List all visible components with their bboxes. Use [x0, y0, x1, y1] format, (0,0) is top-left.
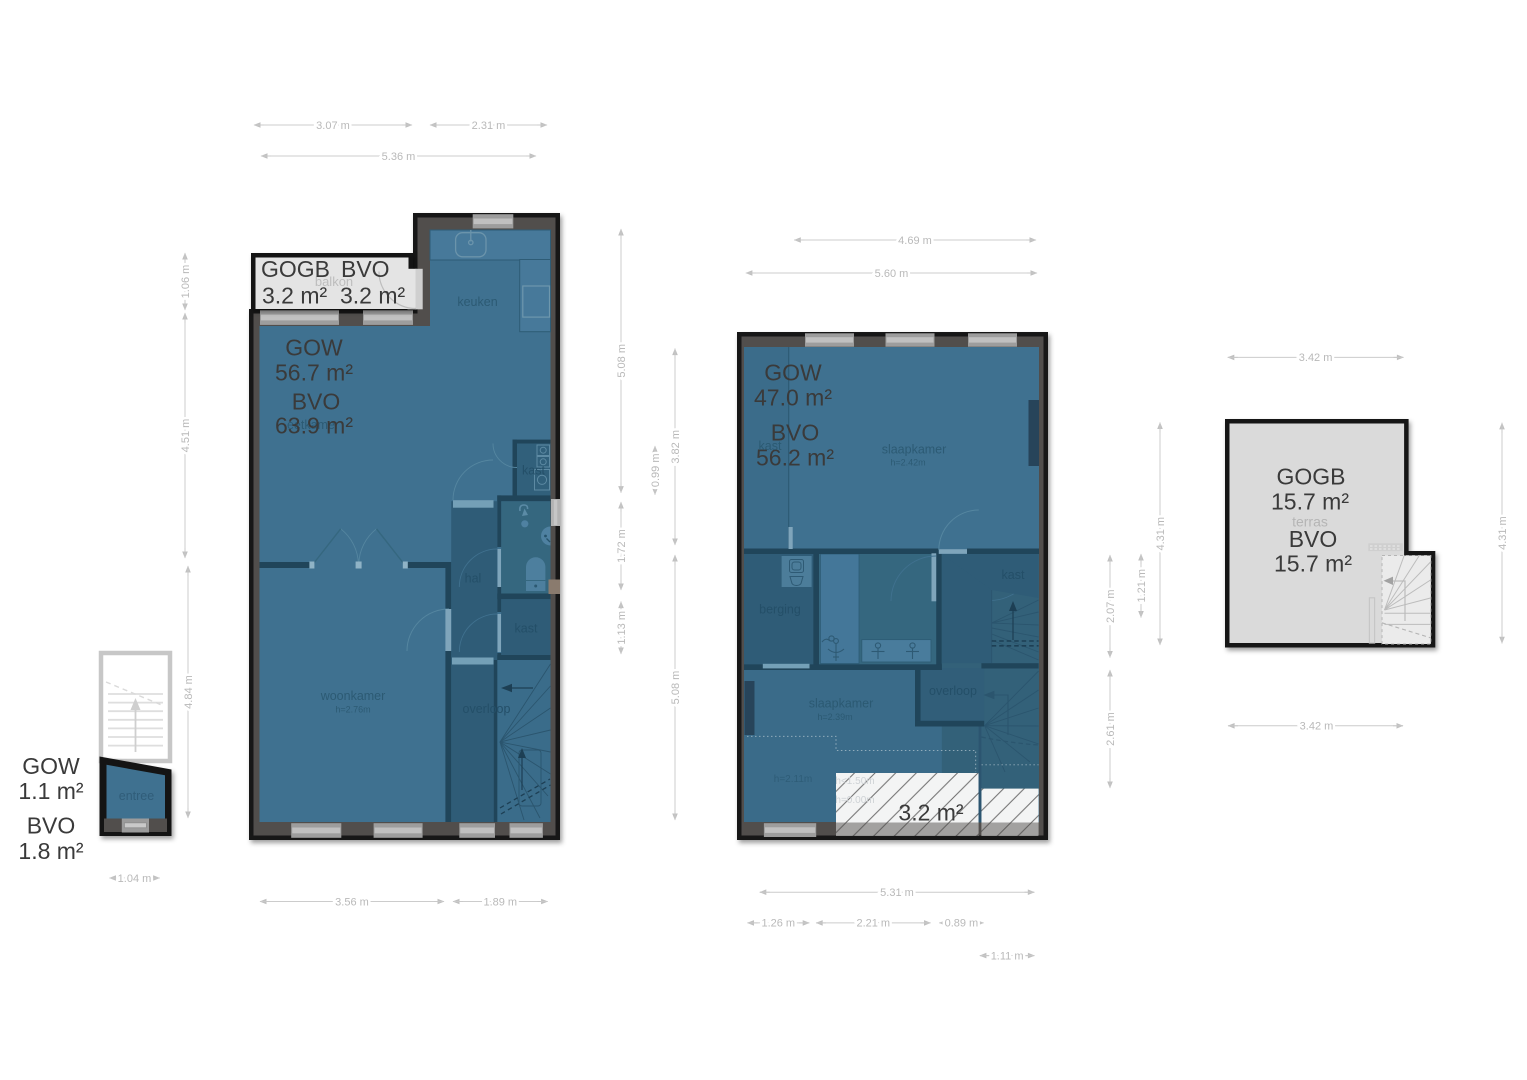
svg-text:BVO: BVO [341, 256, 390, 282]
svg-text:4.84 m: 4.84 m [183, 675, 195, 709]
svg-text:2.07 m: 2.07 m [1105, 589, 1117, 623]
svg-text:1.11 m: 1.11 m [991, 950, 1024, 962]
svg-text:slaapkamer: slaapkamer [809, 697, 874, 711]
svg-text:h=2.39m: h=2.39m [817, 712, 852, 722]
svg-text:GOGB: GOGB [261, 256, 330, 282]
svg-text:entree: entree [119, 789, 154, 803]
svg-text:woonkamer: woonkamer [320, 689, 386, 703]
svg-text:5.60 m: 5.60 m [875, 268, 909, 280]
svg-text:2.61 m: 2.61 m [1105, 712, 1117, 746]
svg-text:overloop: overloop [463, 702, 511, 716]
svg-text:GOW: GOW [285, 335, 343, 361]
svg-text:kast: kast [759, 439, 782, 453]
svg-text:3.56 m: 3.56 m [335, 896, 369, 908]
svg-text:3.2 m²: 3.2 m² [898, 800, 964, 826]
svg-text:1.04 m: 1.04 m [118, 873, 152, 885]
svg-text:4.31 m: 4.31 m [1497, 516, 1509, 550]
svg-text:5.08 m: 5.08 m [616, 344, 628, 378]
svg-text:h=2.76m: h=2.76m [335, 705, 370, 715]
svg-text:2.21 m: 2.21 m [856, 918, 890, 930]
svg-text:3.07 m: 3.07 m [316, 120, 350, 132]
svg-text:BVO: BVO [292, 389, 341, 415]
svg-text:3.2 m²: 3.2 m² [262, 283, 328, 309]
svg-text:h=2.42m: h=2.42m [890, 458, 925, 468]
svg-text:BVO: BVO [1289, 526, 1338, 552]
svg-text:0.99 m: 0.99 m [650, 453, 662, 487]
svg-text:BVO: BVO [27, 813, 76, 839]
svg-text:1.72 m: 1.72 m [616, 529, 628, 563]
svg-text:0.89 m: 0.89 m [945, 918, 979, 930]
svg-text:h=2.11m: h=2.11m [774, 774, 812, 785]
svg-text:keuken: keuken [457, 295, 497, 309]
svg-text:GOW: GOW [764, 360, 822, 386]
svg-text:kast: kast [1002, 568, 1025, 582]
svg-text:slaapkamer: slaapkamer [882, 443, 947, 457]
svg-text:1.8 m²: 1.8 m² [18, 838, 84, 864]
svg-text:1.13 m: 1.13 m [616, 611, 628, 645]
svg-text:1.06 m: 1.06 m [180, 265, 192, 299]
svg-text:GOGB: GOGB [1276, 464, 1345, 490]
svg-text:47.0 m²: 47.0 m² [754, 385, 832, 411]
svg-text:15.7 m²: 15.7 m² [1274, 551, 1352, 577]
svg-text:1.21 m: 1.21 m [1136, 569, 1148, 603]
svg-text:56.7 m²: 56.7 m² [275, 360, 353, 386]
svg-text:3.42 m: 3.42 m [1299, 352, 1333, 364]
svg-text:5.08 m: 5.08 m [670, 671, 682, 705]
svg-text:15.7 m²: 15.7 m² [1271, 489, 1349, 515]
svg-text:kast: kast [522, 464, 545, 478]
svg-text:1.89 m: 1.89 m [483, 896, 517, 908]
svg-text:4.69 m: 4.69 m [898, 235, 932, 247]
svg-text:hal: hal [465, 572, 482, 586]
svg-text:overloop: overloop [929, 684, 977, 698]
svg-text:berging: berging [759, 603, 801, 617]
svg-text:GOW: GOW [22, 753, 80, 779]
svg-text:3.2 m²: 3.2 m² [340, 283, 406, 309]
svg-text:5.31 m: 5.31 m [880, 887, 914, 899]
svg-text:h=0.00m: h=0.00m [835, 795, 874, 806]
svg-text:1.26 m: 1.26 m [761, 918, 795, 930]
svg-text:1.1 m²: 1.1 m² [18, 778, 84, 804]
svg-text:2.31 m: 2.31 m [472, 120, 506, 132]
svg-text:3.42 m: 3.42 m [1300, 721, 1334, 733]
svg-text:63.9 m²: 63.9 m² [275, 413, 353, 439]
svg-text:5.36 m: 5.36 m [382, 151, 416, 163]
svg-text:4.51 m: 4.51 m [180, 419, 192, 453]
svg-text:h<1.50m: h<1.50m [835, 776, 874, 787]
svg-text:3.82 m: 3.82 m [670, 430, 682, 464]
svg-text:kast: kast [515, 622, 538, 636]
svg-text:4.31 m: 4.31 m [1155, 517, 1167, 551]
